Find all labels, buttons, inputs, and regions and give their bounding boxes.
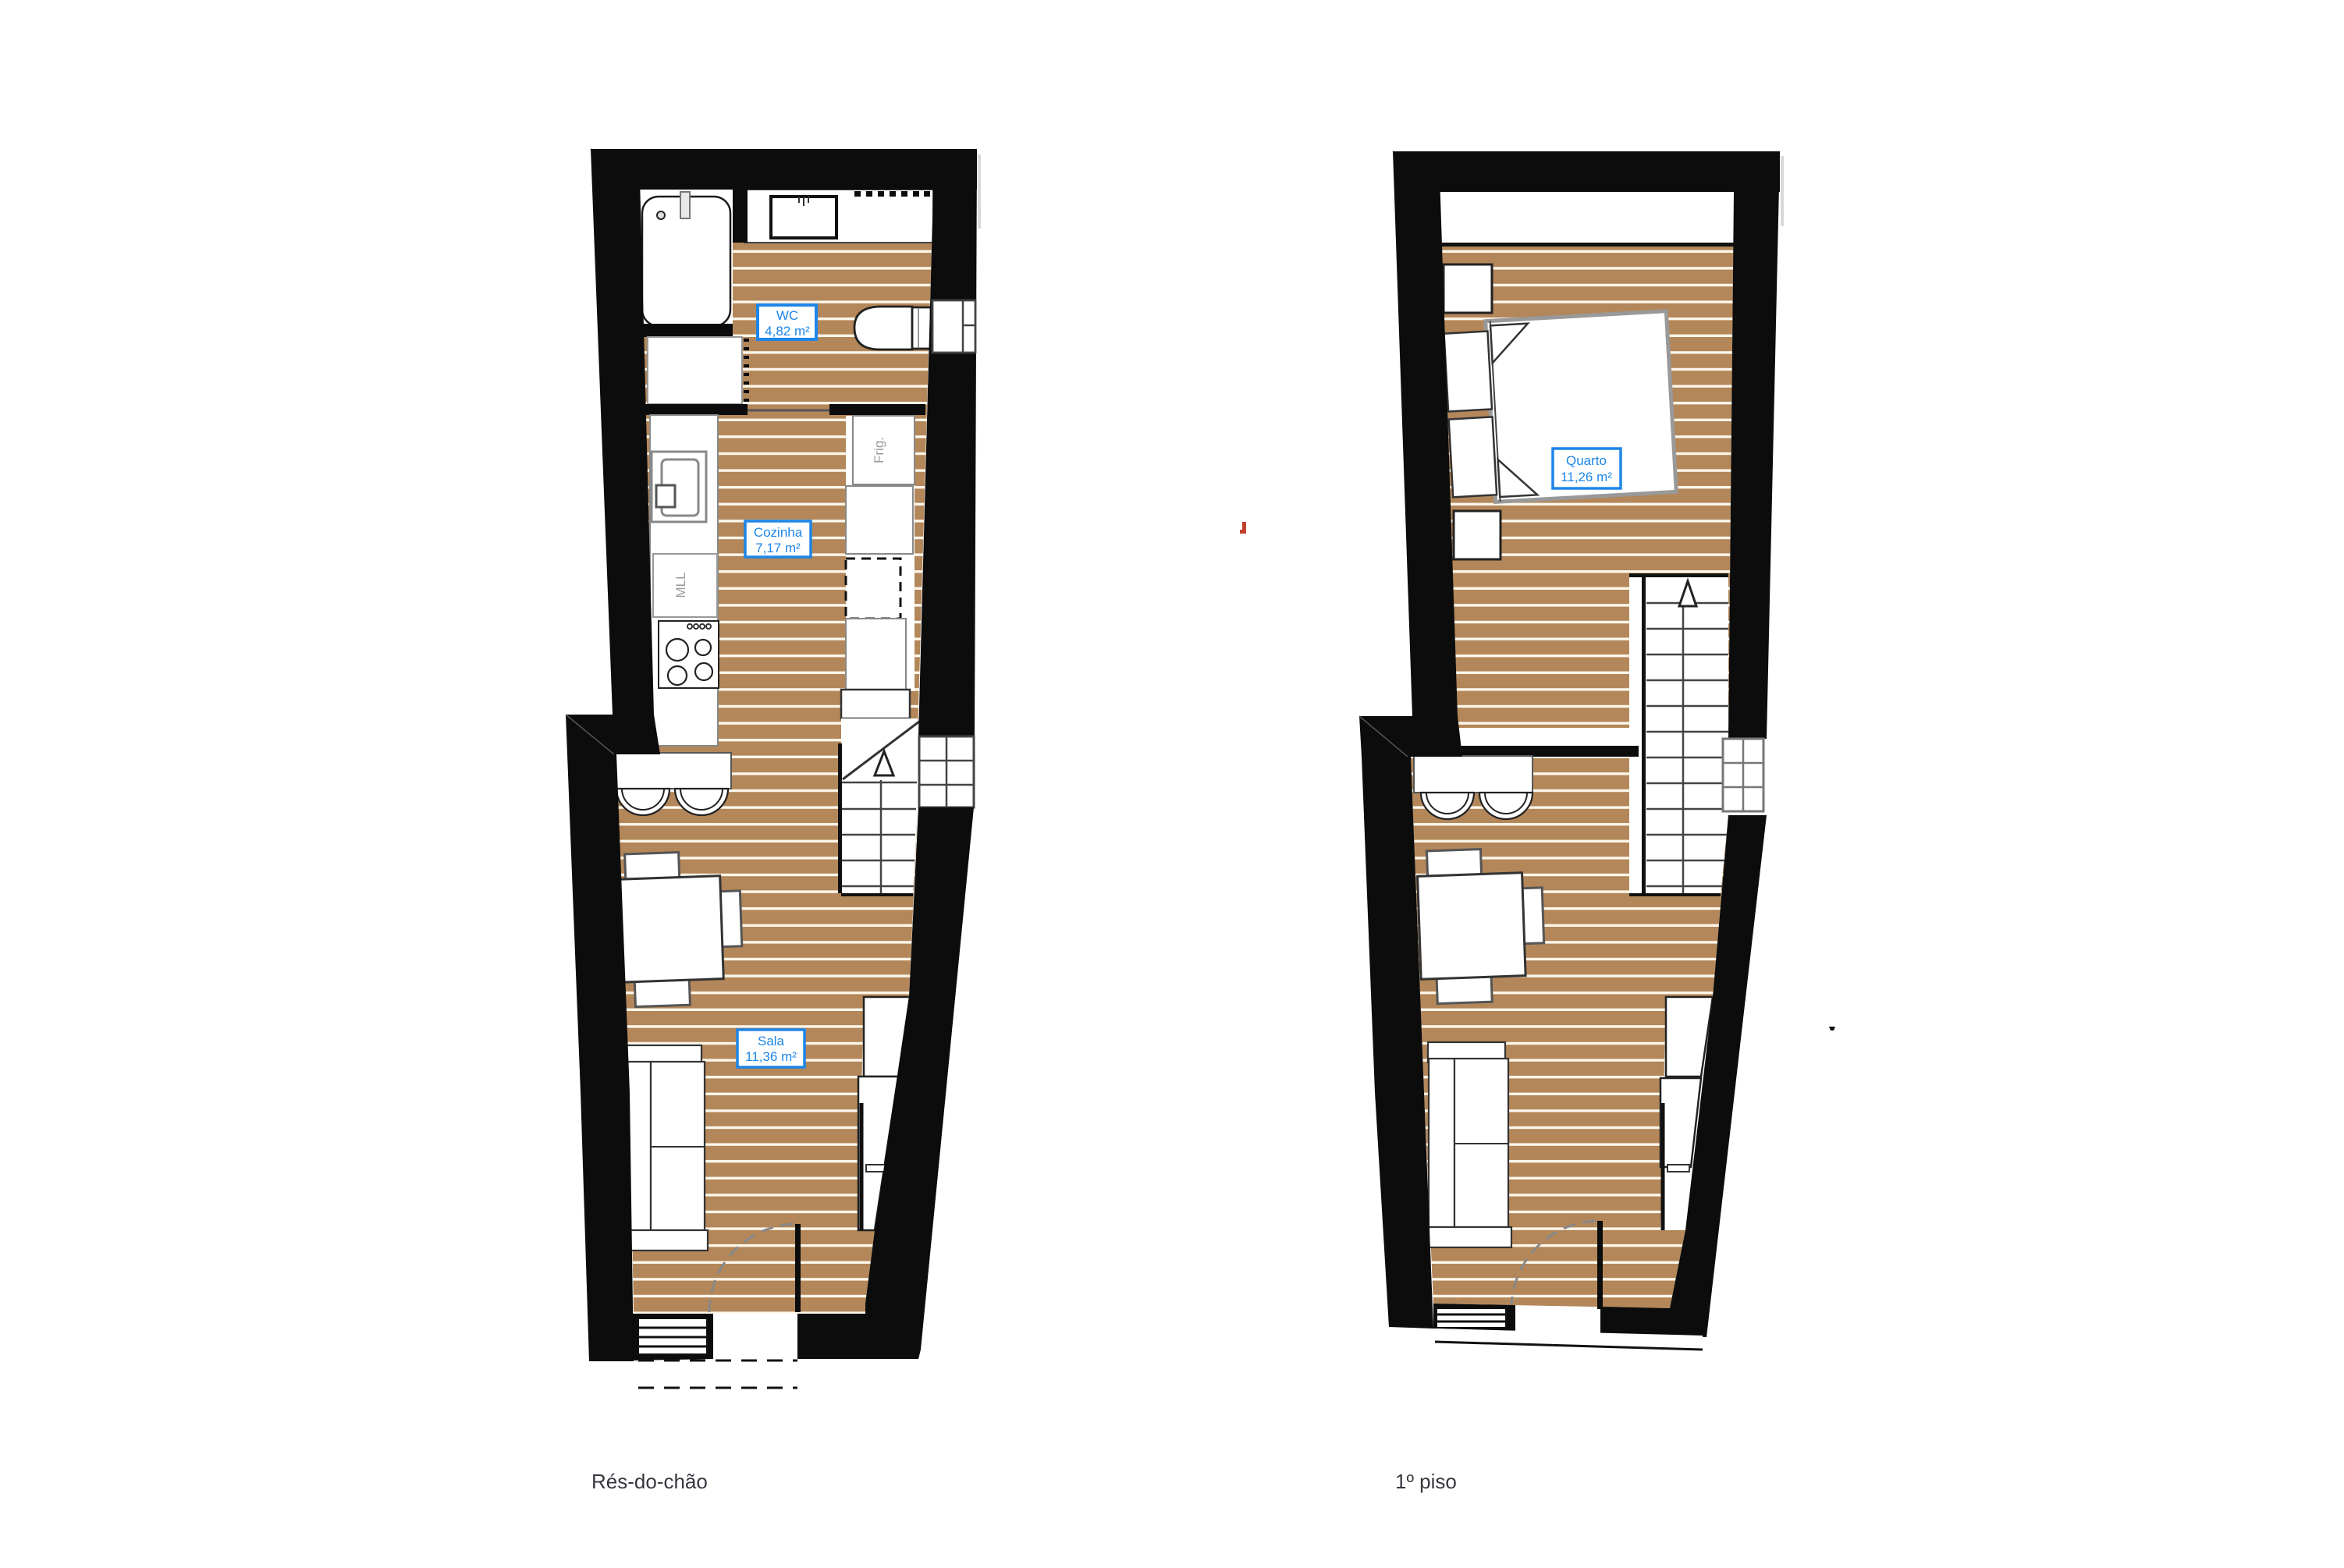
svg-text:Sala: Sala xyxy=(758,1034,785,1048)
svg-text:MLL: MLL xyxy=(673,572,688,598)
svg-text:11,36 m²: 11,36 m² xyxy=(745,1049,797,1064)
svg-text:11,26 m²: 11,26 m² xyxy=(1561,470,1612,484)
svg-text:4,82 m²: 4,82 m² xyxy=(765,324,810,339)
svg-text:WC: WC xyxy=(776,308,798,323)
svg-text:Quarto: Quarto xyxy=(1566,453,1607,468)
svg-text:7,17 m²: 7,17 m² xyxy=(755,541,801,555)
svg-text:Rés-do-chão: Rés-do-chão xyxy=(591,1470,708,1493)
svg-text:Cozinha: Cozinha xyxy=(754,525,803,540)
svg-text:Frig.: Frig. xyxy=(872,437,886,463)
svg-text:1º piso: 1º piso xyxy=(1395,1470,1457,1493)
